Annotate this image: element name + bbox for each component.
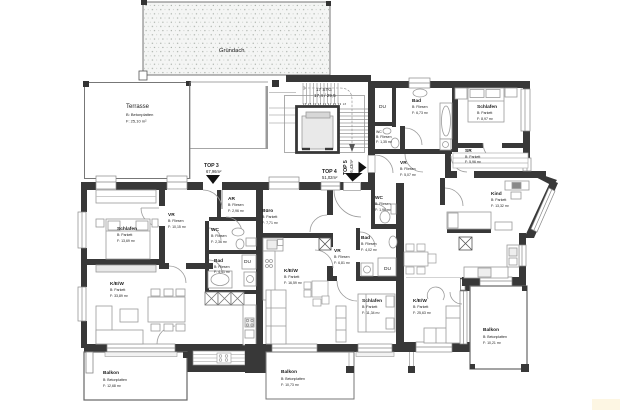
svg-text:B: Betonplatten: B: Betonplatten	[483, 335, 507, 339]
svg-text:B: Fliesen: B: Fliesen	[375, 202, 391, 206]
svg-text:Schlafen: Schlafen	[362, 298, 382, 304]
svg-text:B: Fliesen: B: Fliesen	[334, 255, 350, 259]
svg-text:F: 6,73 m²: F: 6,73 m²	[412, 111, 429, 115]
svg-text:F: 4,02 m²: F: 4,02 m²	[361, 248, 378, 252]
svg-text:K/E/W: K/E/W	[110, 281, 124, 287]
svg-text:B: Betonplatten: B: Betonplatten	[126, 112, 153, 117]
svg-text:K/E/W: K/E/W	[413, 298, 427, 304]
svg-text:B: Fliesen: B: Fliesen	[400, 167, 416, 171]
svg-text:B: Parkett: B: Parkett	[477, 111, 492, 115]
svg-text:Schlafen: Schlafen	[477, 104, 497, 110]
svg-text:B: Betonplatten: B: Betonplatten	[281, 377, 305, 381]
svg-text:B: Parkett: B: Parkett	[110, 288, 125, 292]
svg-text:AR: AR	[228, 196, 235, 202]
svg-text:F: 13,32 m²: F: 13,32 m²	[491, 204, 510, 208]
svg-text:B: Fliesen: B: Fliesen	[211, 234, 227, 238]
svg-text:Balkon: Balkon	[103, 370, 119, 376]
svg-text:F: 13,69 m²: F: 13,69 m²	[117, 239, 136, 243]
svg-text:F: 25,63 m²: F: 25,63 m²	[413, 311, 432, 315]
svg-text:Gründach: Gründach	[219, 48, 244, 54]
svg-text:B: Parkett: B: Parkett	[262, 215, 277, 219]
svg-text:67,96m²: 67,96m²	[206, 169, 222, 174]
svg-text:DU: DU	[379, 104, 386, 110]
svg-text:WC: WC	[211, 227, 220, 233]
svg-text:Terrasse: Terrasse	[126, 104, 150, 110]
svg-text:Kind: Kind	[491, 191, 502, 197]
svg-text:F: 11,34 m²: F: 11,34 m²	[362, 311, 380, 315]
svg-text:F: 2,96 m²: F: 2,96 m²	[228, 209, 245, 213]
svg-text:B: Fliesen: B: Fliesen	[412, 105, 428, 109]
svg-text:F: 5,96 m²: F: 5,96 m²	[465, 160, 482, 164]
svg-text:B: Fliesen: B: Fliesen	[214, 265, 230, 269]
svg-text:B: Betonplatten: B: Betonplatten	[103, 378, 127, 382]
svg-text:F: 7,71 m²: F: 7,71 m²	[262, 221, 279, 225]
svg-text:B: Parkett: B: Parkett	[413, 305, 428, 309]
svg-text:DU: DU	[244, 259, 251, 265]
svg-text:F: 10,73 m²: F: 10,73 m²	[281, 383, 300, 387]
svg-text:Bad: Bad	[361, 235, 370, 241]
svg-text:F: 1,96 m²: F: 1,96 m²	[375, 208, 392, 212]
svg-text:B: Parkett: B: Parkett	[491, 198, 506, 202]
svg-text:F: 25,10 m²: F: 25,10 m²	[126, 119, 147, 124]
svg-text:K/E/W: K/E/W	[284, 268, 298, 274]
svg-text:17,4 / 29,5: 17,4 / 29,5	[314, 93, 336, 98]
svg-text:B: Fliesen: B: Fliesen	[228, 203, 244, 207]
svg-text:B: Fliesen: B: Fliesen	[168, 219, 184, 223]
svg-text:B: Fliesen: B: Fliesen	[376, 135, 392, 139]
svg-text:Büro: Büro	[262, 208, 273, 214]
svg-text:VR: VR	[400, 160, 407, 166]
svg-text:B: Parkett: B: Parkett	[465, 155, 480, 159]
svg-text:Bad: Bad	[214, 258, 223, 264]
svg-text:F: 12,68 m²: F: 12,68 m²	[103, 384, 122, 388]
svg-text:VR: VR	[168, 212, 175, 218]
svg-text:B: Parkett: B: Parkett	[117, 233, 132, 237]
svg-text:Balkon: Balkon	[281, 369, 297, 375]
svg-text:F: 16,59 m²: F: 16,59 m²	[284, 281, 303, 285]
svg-text:Schlafen: Schlafen	[117, 226, 137, 232]
svg-text:76,43m²: 76,43m²	[349, 159, 354, 175]
svg-text:F: 8,97 m²: F: 8,97 m²	[477, 117, 494, 121]
svg-text:F: 2,36 m²: F: 2,36 m²	[211, 240, 228, 244]
svg-text:51,02m²: 51,02m²	[322, 175, 338, 180]
svg-text:F: 10,21 m²: F: 10,21 m²	[483, 341, 502, 345]
svg-text:B: Parkett: B: Parkett	[362, 305, 377, 309]
svg-text:F: 4,41 m²: F: 4,41 m²	[214, 270, 231, 274]
svg-text:B: Parkett: B: Parkett	[284, 275, 299, 279]
svg-text:F: 6,81 m²: F: 6,81 m²	[334, 261, 351, 265]
svg-text:Balkon: Balkon	[483, 327, 499, 333]
svg-text:F: 1,35 m²: F: 1,35 m²	[376, 140, 393, 144]
svg-text:WC: WC	[375, 195, 384, 201]
svg-text:F: 10,15 m²: F: 10,15 m²	[168, 225, 187, 229]
svg-text:WC: WC	[376, 130, 382, 134]
svg-text:F: 5,07 m²: F: 5,07 m²	[400, 173, 417, 177]
svg-text:SR: SR	[465, 148, 472, 154]
svg-text:F: 33,89 m²: F: 33,89 m²	[110, 294, 129, 298]
svg-text:DU: DU	[384, 266, 391, 272]
svg-text:Bad: Bad	[412, 98, 421, 104]
svg-text:B: Fliesen: B: Fliesen	[361, 242, 377, 246]
svg-text:VR: VR	[334, 248, 341, 254]
